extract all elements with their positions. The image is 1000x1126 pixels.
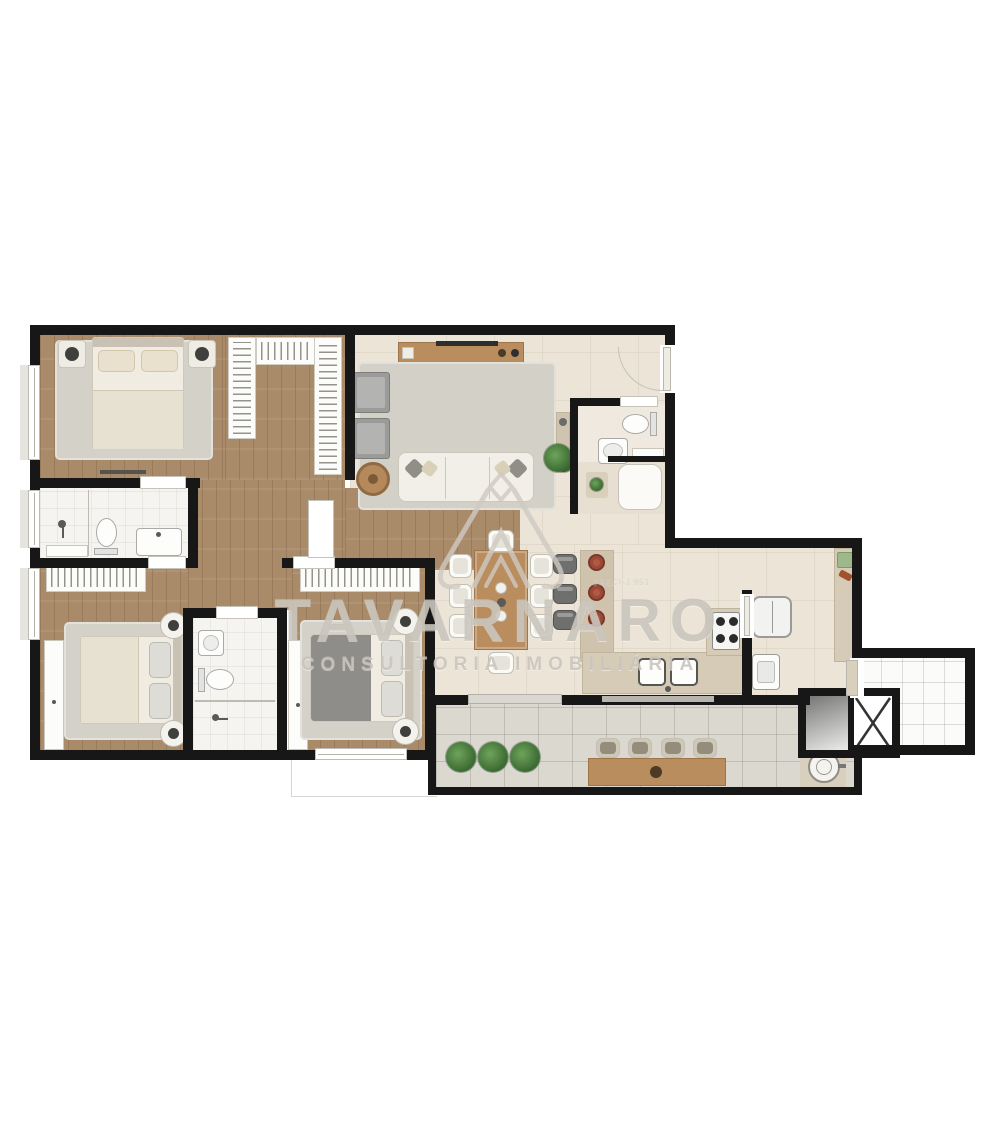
basin — [203, 635, 219, 651]
armchair — [352, 372, 390, 413]
terrace-plant — [478, 742, 508, 772]
cushion — [492, 656, 510, 670]
tank-basin — [757, 661, 775, 683]
terrace-plant — [510, 742, 540, 772]
closet-shelf-top — [256, 337, 316, 365]
bedroom-2-door — [148, 556, 186, 569]
terrace-chair — [596, 738, 620, 758]
wall-lavabo-top — [570, 398, 622, 406]
wall-terrace-right — [854, 750, 862, 795]
kitchen-window-bar — [602, 696, 714, 702]
pillow — [381, 640, 403, 676]
plate-inner — [593, 615, 600, 622]
lamp-icon — [400, 726, 411, 737]
faucet-icon — [665, 686, 671, 692]
glass-line — [34, 493, 35, 545]
toilet — [96, 518, 117, 547]
bedroom-2-closet-column — [44, 640, 64, 750]
cushion — [632, 742, 648, 754]
corridor-storage-door — [308, 500, 334, 558]
toilet — [622, 414, 649, 434]
laundry-tank — [752, 654, 780, 690]
wall-lavabo-mid — [608, 456, 666, 462]
wall-bath2-right — [277, 608, 287, 753]
bathroom-2-sink — [198, 630, 224, 656]
wall-hall-right — [965, 648, 975, 755]
place-setting — [588, 554, 605, 571]
fridge-door-line — [772, 601, 773, 633]
wall-lavabo-left — [570, 398, 578, 514]
sofa-pillow-icon — [420, 459, 438, 477]
green-box — [837, 552, 853, 568]
hanger-icons — [261, 342, 311, 360]
bedroom-2-window — [28, 568, 40, 640]
lamp-icon — [400, 616, 411, 627]
stool-back — [557, 613, 573, 617]
dining-chair — [530, 584, 553, 608]
shower-box — [618, 464, 662, 510]
cushion — [534, 558, 549, 574]
faucet-icon — [156, 532, 161, 537]
bedroom-1-window — [28, 365, 40, 460]
pillow — [149, 642, 171, 678]
terrace-chair — [693, 738, 717, 758]
bathroom-2-door — [216, 606, 258, 619]
bedroom-1-bench — [100, 470, 146, 474]
lavabo-door — [620, 396, 658, 407]
elevator-car — [806, 696, 848, 750]
pillow — [141, 350, 178, 372]
bar-stool — [553, 610, 577, 630]
bar-stool — [553, 584, 577, 604]
dining-chair — [530, 614, 553, 638]
window-sill — [20, 568, 28, 640]
burner-icon — [729, 634, 738, 643]
wall-kitchen-top — [665, 538, 862, 548]
place-setting — [588, 584, 605, 601]
window-sill — [20, 365, 28, 460]
barbecue-handle — [838, 764, 846, 768]
cushion — [697, 742, 713, 754]
sofa-seam — [489, 457, 490, 499]
stairs-shaft — [854, 696, 892, 750]
toilet-tank — [650, 412, 657, 436]
glass-line — [34, 571, 35, 637]
burner-icon — [716, 634, 725, 643]
wall-hall-top — [852, 648, 975, 658]
cushion — [357, 423, 385, 454]
service-door-leaf — [744, 596, 750, 636]
towel-shelf — [46, 545, 88, 557]
glass-line — [318, 754, 404, 755]
plant-icon — [590, 478, 603, 491]
bathroom-1-window — [28, 490, 40, 548]
console-vase-icon — [559, 418, 567, 426]
terrace-centerpiece — [650, 766, 662, 778]
armchair — [352, 418, 390, 459]
dining-chair — [449, 614, 472, 638]
hanger-icons — [233, 342, 251, 434]
toilet-tank — [94, 548, 118, 555]
bedroom-2-bed — [80, 636, 182, 724]
burner-icon — [716, 617, 725, 626]
shower-arm — [62, 526, 64, 538]
cushion — [453, 588, 468, 604]
wall-bath1-right — [188, 478, 198, 568]
hall-door-leaf — [846, 660, 858, 696]
handle-icon — [52, 700, 56, 704]
glass-line — [34, 368, 35, 457]
stool-back — [557, 587, 573, 591]
headboard — [173, 637, 181, 723]
centerpiece — [495, 610, 507, 622]
barbecue-inner — [816, 759, 832, 775]
x-cross-icon — [854, 696, 892, 750]
blanket — [93, 390, 183, 449]
dining-chair — [449, 584, 472, 608]
exterior-outline — [291, 755, 437, 797]
kitchen-sink — [638, 658, 666, 686]
sofa — [398, 452, 534, 502]
terrace-chair — [661, 738, 685, 758]
cushion — [534, 588, 549, 604]
lamp-icon — [195, 347, 209, 361]
kitchen-sink — [670, 658, 698, 686]
cushion — [534, 618, 549, 634]
burner-icon — [729, 617, 738, 626]
lamp-icon — [168, 620, 179, 631]
plate-inner — [593, 589, 600, 596]
entry-door-leaf — [663, 347, 671, 391]
cushion — [453, 558, 468, 574]
cushion — [665, 742, 681, 754]
wall-bath2-left — [183, 608, 193, 753]
toilet — [206, 669, 234, 690]
window-sill — [20, 490, 28, 548]
sideboard-vase-icon — [511, 349, 519, 357]
headboard — [93, 338, 183, 347]
wall-hall-bottom — [852, 745, 975, 755]
terrace-sliding-door — [468, 694, 562, 704]
pillow — [381, 681, 403, 717]
wall-terrace-left — [428, 695, 436, 795]
terrace-chair — [628, 738, 652, 758]
cushion — [600, 742, 616, 754]
headboard — [405, 635, 413, 721]
bar-stool — [553, 554, 577, 574]
floor-plan-image: CRECI-J 951 TAVARNARO CONSULTORIA IMOBIL… — [0, 0, 1000, 1126]
lamp-icon — [168, 728, 179, 739]
dining-chair — [449, 554, 472, 578]
cushion — [357, 377, 385, 408]
bedroom-3-bed — [310, 634, 414, 722]
hanger-icons — [305, 567, 415, 587]
gray-throw — [311, 635, 371, 721]
pillow — [149, 683, 171, 719]
plate-inner — [593, 559, 600, 566]
cushion — [492, 534, 510, 548]
closet-shelf-right — [314, 337, 342, 475]
bedroom-3-window — [315, 748, 407, 760]
centerpiece — [495, 582, 507, 594]
blanket — [81, 637, 139, 723]
stool-back — [557, 557, 573, 561]
refrigerator — [752, 596, 792, 638]
dining-chair — [488, 652, 514, 674]
shower-arm — [218, 718, 228, 720]
dining-chair — [488, 530, 514, 552]
plant-icon — [544, 444, 572, 472]
closet-shelf-left — [228, 337, 256, 439]
bedroom-1-bed — [92, 337, 184, 449]
shower-divider — [88, 490, 89, 556]
hanger-icons — [319, 342, 337, 470]
terrace-plant — [446, 742, 476, 772]
dining-chair — [530, 554, 553, 578]
sofa-pillow-icon — [493, 459, 511, 477]
place-setting — [588, 610, 605, 627]
sofa-seam — [445, 457, 446, 499]
wall-service-right — [852, 538, 862, 656]
wall-terrace-bottom — [428, 787, 862, 795]
cushion — [453, 618, 468, 634]
centerpiece — [497, 598, 506, 607]
lamp-icon — [65, 347, 79, 361]
tv-icon — [436, 341, 498, 346]
shower-glass — [195, 700, 275, 702]
toilet-tank — [198, 668, 205, 692]
wall-closet-living — [345, 325, 355, 480]
sideboard-decor — [402, 347, 414, 359]
hanger-icons — [51, 567, 141, 587]
pillow — [98, 350, 135, 372]
bathroom-1-door — [140, 476, 186, 489]
sideboard-vase-icon — [498, 349, 506, 357]
coffee-table-center — [368, 474, 378, 484]
